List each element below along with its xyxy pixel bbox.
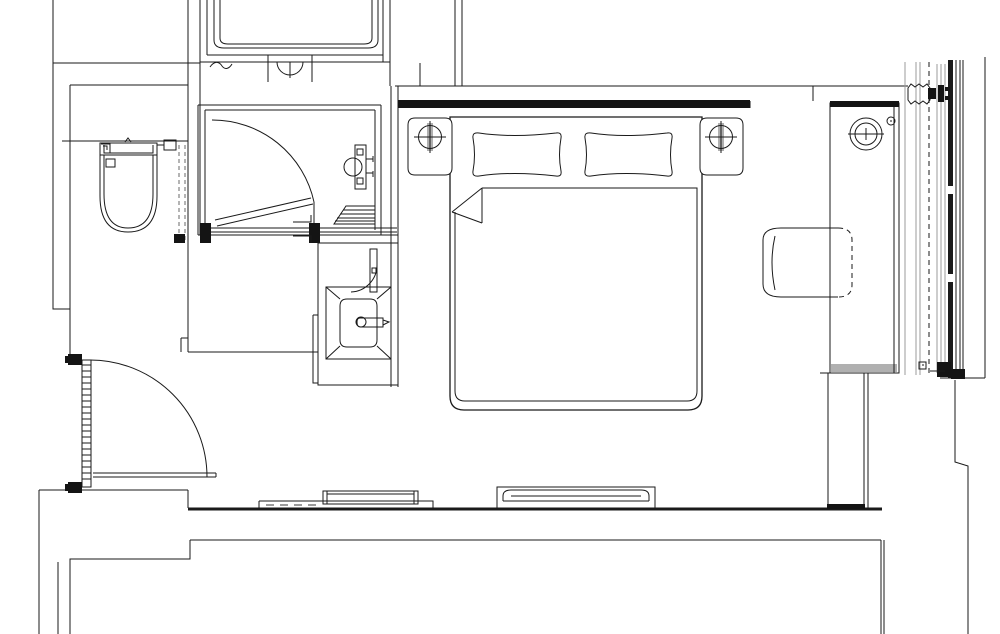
entry-door-threshold bbox=[93, 473, 216, 477]
pillows-icon bbox=[473, 133, 672, 176]
entry-door-swing-arc bbox=[90, 360, 207, 477]
shower-mixer-icon bbox=[344, 145, 373, 189]
wall-bench-left bbox=[259, 491, 433, 509]
duvet-with-fold bbox=[452, 188, 697, 401]
shower-door-swing bbox=[212, 120, 314, 226]
lamp-crosshairs bbox=[414, 121, 737, 153]
entry-door-hinges bbox=[65, 354, 82, 493]
toilet-icon bbox=[100, 138, 176, 232]
shower-door-hardware bbox=[293, 215, 311, 243]
shower-steps-icon bbox=[334, 206, 375, 224]
tub-faucet-icon bbox=[268, 55, 312, 82]
entry-door-leaf bbox=[82, 360, 91, 487]
window-frame-lines bbox=[956, 60, 963, 378]
desk-lower-band bbox=[831, 364, 897, 372]
nightstands bbox=[408, 118, 743, 175]
wall-break-symbol bbox=[908, 84, 930, 104]
wall-bench-right bbox=[497, 487, 655, 508]
exterior-interior-walls bbox=[39, 0, 985, 634]
lamp-circles bbox=[419, 126, 733, 149]
desk-top-edge bbox=[830, 101, 899, 107]
wardrobe-panel bbox=[828, 373, 868, 508]
adjacent-bathtub-room bbox=[200, 0, 390, 68]
wardrobe-foot bbox=[827, 504, 865, 509]
headboard-bar bbox=[398, 100, 750, 108]
service-chase-dashed bbox=[179, 145, 185, 243]
vanity-sink-icon bbox=[313, 243, 398, 385]
desk-lamp-icon bbox=[848, 118, 884, 150]
floor-plan-canvas bbox=[0, 0, 1000, 634]
desk-chair bbox=[763, 228, 838, 297]
lamp-stems bbox=[427, 123, 724, 151]
window-top-connector bbox=[928, 85, 950, 102]
floor-plan-page bbox=[0, 0, 1000, 634]
party-wall-top-band bbox=[390, 0, 908, 108]
service-chase-foot bbox=[174, 234, 185, 243]
desk-chair-hidden-edge bbox=[838, 228, 852, 297]
window-glazing-gray-lines bbox=[905, 62, 945, 375]
